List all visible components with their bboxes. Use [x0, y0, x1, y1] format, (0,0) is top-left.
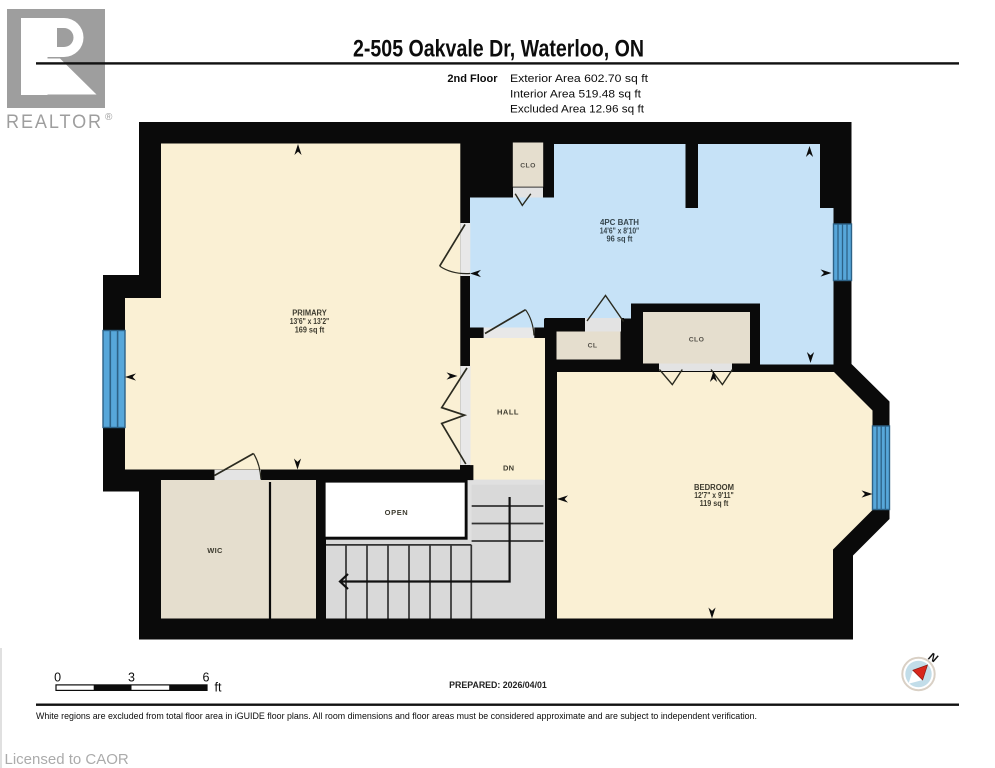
svg-text:ft: ft	[215, 681, 222, 695]
svg-text:96 sq ft: 96 sq ft	[607, 235, 633, 244]
svg-text:CLO: CLO	[689, 337, 705, 344]
svg-text:PREPARED: 2026/04/01: PREPARED: 2026/04/01	[449, 680, 547, 690]
svg-text:REALTOR: REALTOR	[6, 112, 103, 133]
svg-text:169 sq ft: 169 sq ft	[295, 325, 325, 334]
svg-text:DN: DN	[503, 463, 514, 472]
svg-text:Licensed to CAOR: Licensed to CAOR	[5, 751, 129, 768]
svg-text:White regions are excluded fro: White regions are excluded from total fl…	[36, 711, 757, 721]
svg-text:0: 0	[54, 671, 61, 685]
svg-text:Exterior Area 602.70 sq ft: Exterior Area 602.70 sq ft	[510, 73, 648, 85]
svg-text:HALL: HALL	[497, 408, 519, 417]
svg-text:CL: CL	[588, 343, 598, 350]
svg-text:WIC: WIC	[207, 546, 223, 555]
svg-text:®: ®	[105, 112, 113, 123]
svg-text:3: 3	[128, 671, 135, 685]
svg-text:2nd Floor: 2nd Floor	[447, 73, 498, 85]
svg-text:Excluded Area 12.96 sq ft: Excluded Area 12.96 sq ft	[510, 103, 644, 115]
svg-text:Interior Area 519.48 sq ft: Interior Area 519.48 sq ft	[510, 88, 641, 100]
svg-text:CLO: CLO	[520, 162, 536, 169]
svg-text:OPEN: OPEN	[385, 508, 409, 517]
svg-text:2-505 Oakvale Dr, Waterloo, ON: 2-505 Oakvale Dr, Waterloo, ON	[353, 35, 644, 62]
svg-text:6: 6	[203, 671, 210, 685]
svg-text:119 sq ft: 119 sq ft	[700, 499, 729, 508]
